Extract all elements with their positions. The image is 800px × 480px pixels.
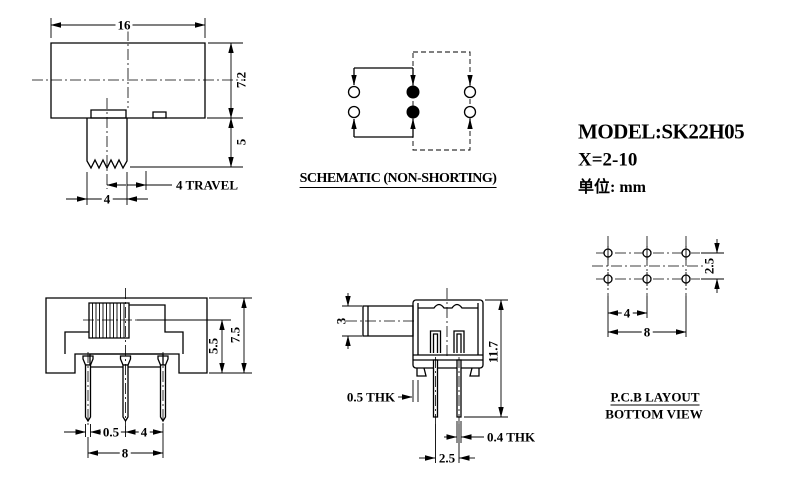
side-upper-height-dim-label: 5.5 <box>207 338 220 354</box>
pcb-layout-linework <box>592 236 724 337</box>
profile-shell-thickness-label: 0.5 THK <box>347 391 395 404</box>
side-pin-pitch-dim-label: 4 <box>139 426 150 439</box>
model-label: MODEL:SK22H05 <box>578 122 744 143</box>
variant-label: X=2-10 <box>578 151 637 170</box>
front-width-dim-label: 16 <box>116 19 133 32</box>
schematic-linework <box>349 52 476 150</box>
technical-drawing-page: 16 7.2 5 4 TRAVEL 4 SCHEMATIC (NON-SHORT… <box>0 0 800 480</box>
pcb-row-pitch-dim-label: 2.5 <box>703 258 716 274</box>
schematic-caption: SCHEMATIC (NON-SHORTING) <box>300 172 497 188</box>
profile-view-linework <box>342 288 508 463</box>
pcb-caption-line1: P.C.B LAYOUT <box>611 391 700 406</box>
profile-pin-thickness-label: 0.4 THK <box>487 431 535 444</box>
profile-pin-pitch-dim-label: 2.5 <box>439 452 455 465</box>
side-total-height-dim-label: 7.5 <box>229 327 242 343</box>
pcb-col-pitch-dim-label: 4 <box>622 307 633 320</box>
front-knob-height-dim-label: 5 <box>235 139 248 146</box>
front-travel-dim-label: 4 TRAVEL <box>176 179 238 192</box>
pcb-caption-line2: BOTTOM VIEW <box>605 408 702 421</box>
profile-total-height-dim-label: 11.7 <box>487 341 500 363</box>
unit-label: 单位: mm <box>578 180 646 196</box>
front-body-height-dim-label: 7.2 <box>235 72 248 88</box>
profile-knob-height-dim-label: 3 <box>335 318 348 325</box>
side-pin-width-dim-label: 0.5 <box>101 426 121 439</box>
pcb-span-dim-label: 8 <box>642 326 653 339</box>
front-knob-width-dim-label: 4 <box>102 193 113 206</box>
side-pin-span-dim-label: 8 <box>120 447 131 460</box>
